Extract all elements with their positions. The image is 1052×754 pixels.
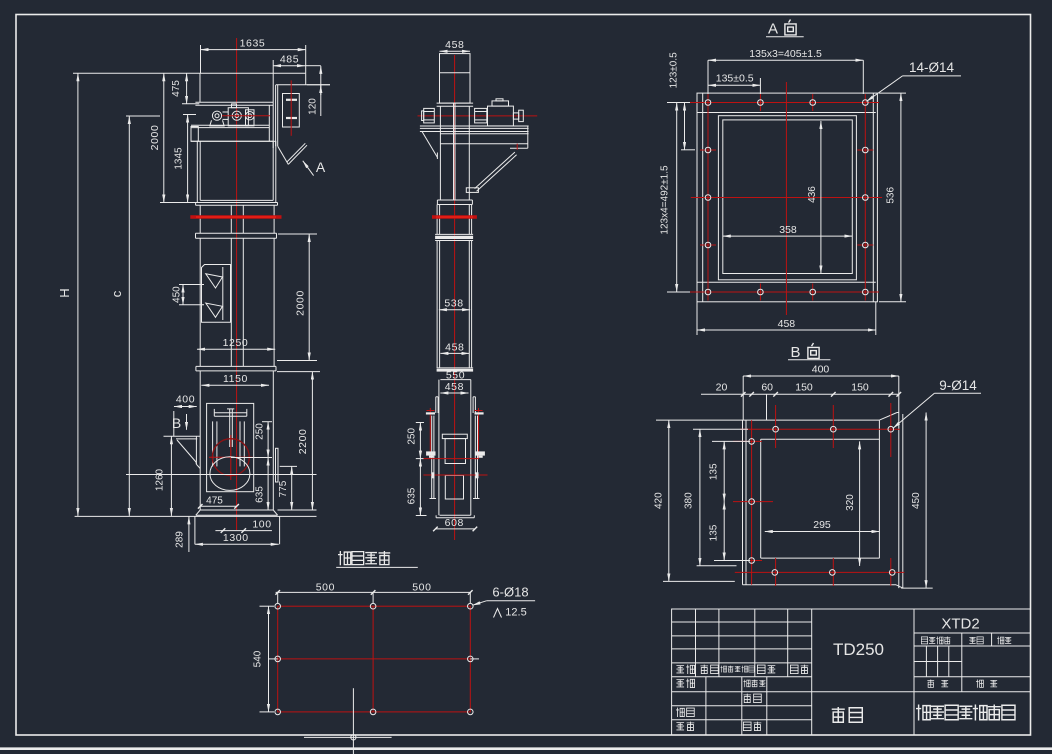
svg-text:20: 20 (716, 382, 728, 394)
svg-text:2000: 2000 (149, 125, 161, 151)
svg-text:538: 538 (444, 298, 463, 310)
svg-text:400: 400 (176, 394, 195, 406)
svg-text:1260: 1260 (155, 468, 166, 491)
svg-text:c: c (109, 290, 124, 297)
svg-text:450: 450 (911, 492, 922, 509)
svg-text:320: 320 (845, 494, 856, 511)
svg-text:135±0.5: 135±0.5 (716, 73, 754, 85)
svg-text:A: A (316, 159, 326, 175)
svg-text:500: 500 (412, 582, 431, 594)
svg-text:550: 550 (446, 370, 465, 382)
svg-text:250: 250 (255, 423, 266, 440)
svg-text:500: 500 (316, 582, 335, 594)
svg-text:775: 775 (278, 480, 289, 497)
svg-text:458: 458 (445, 341, 464, 353)
svg-text:400: 400 (812, 364, 830, 376)
svg-text:1635: 1635 (240, 38, 266, 50)
svg-text:289: 289 (175, 531, 186, 548)
svg-text:60: 60 (761, 382, 773, 394)
svg-text:475: 475 (206, 496, 223, 507)
svg-text:XTD2: XTD2 (941, 616, 979, 633)
svg-text:1250: 1250 (223, 337, 249, 349)
svg-text:436: 436 (807, 186, 818, 203)
svg-text:150: 150 (795, 382, 813, 394)
svg-text:635: 635 (407, 487, 418, 504)
svg-text:536: 536 (886, 187, 897, 204)
svg-text:420: 420 (653, 492, 664, 509)
svg-text:TD250: TD250 (833, 640, 884, 659)
svg-text:458: 458 (445, 39, 464, 51)
svg-text:450: 450 (172, 286, 183, 303)
svg-text:B: B (790, 344, 800, 361)
svg-text:H: H (57, 288, 72, 297)
svg-text:14-Ø14: 14-Ø14 (909, 60, 955, 75)
svg-text:12.5: 12.5 (505, 607, 526, 619)
svg-text:485: 485 (280, 54, 299, 66)
svg-text:250: 250 (407, 428, 418, 445)
svg-text:295: 295 (813, 519, 831, 531)
svg-text:135: 135 (709, 463, 720, 480)
svg-text:380: 380 (683, 492, 694, 509)
svg-text:150: 150 (851, 382, 869, 394)
svg-text:A: A (768, 21, 778, 38)
svg-text:9-Ø14: 9-Ø14 (939, 378, 977, 393)
svg-text:135: 135 (709, 524, 720, 541)
svg-text:123x4=492±1.5: 123x4=492±1.5 (660, 165, 671, 235)
svg-text:458: 458 (445, 381, 464, 393)
svg-text:635: 635 (255, 486, 266, 503)
svg-text:608: 608 (445, 517, 464, 529)
svg-text:540: 540 (253, 650, 264, 667)
svg-text:123±0.5: 123±0.5 (669, 52, 680, 89)
svg-text:358: 358 (779, 224, 797, 236)
svg-text:458: 458 (778, 318, 796, 330)
svg-text:1345: 1345 (174, 147, 185, 170)
svg-text:6-Ø18: 6-Ø18 (492, 585, 528, 600)
svg-text:2200: 2200 (297, 429, 309, 455)
svg-text:120: 120 (308, 98, 319, 115)
svg-text:B: B (172, 415, 181, 431)
svg-text:1300: 1300 (223, 532, 249, 544)
svg-text:1150: 1150 (223, 373, 248, 385)
svg-text:475: 475 (171, 80, 182, 97)
svg-text:100: 100 (252, 519, 271, 531)
svg-text:135x3=405±1.5: 135x3=405±1.5 (749, 48, 822, 60)
svg-text:2000: 2000 (295, 290, 307, 316)
